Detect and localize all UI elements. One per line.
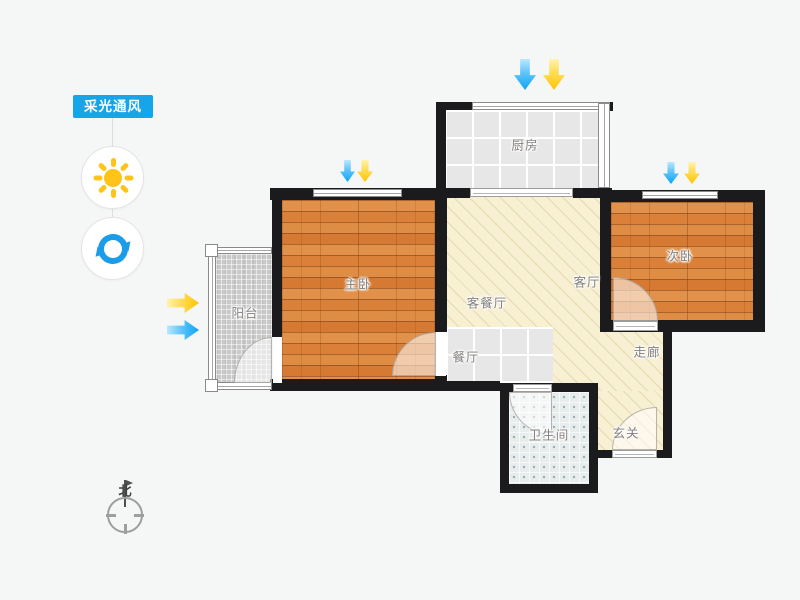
room-label-balcony: 阳台 <box>231 303 258 322</box>
room-label-kitchen: 厨房 <box>511 135 538 154</box>
wall <box>272 188 282 337</box>
panel-title: 采光通风 <box>73 95 153 118</box>
door-threshold <box>613 321 658 331</box>
floorplan-viewer: 采光通风 <box>0 0 800 600</box>
room-label-living: 客厅 <box>573 272 600 291</box>
window <box>208 247 216 390</box>
window-post <box>205 379 218 392</box>
sun-icon <box>93 158 133 198</box>
wall <box>270 379 447 391</box>
refresh-icon <box>93 229 133 269</box>
room-label-master-bedroom: 主卧 <box>344 274 371 293</box>
room-label-dining: 餐厅 <box>452 347 479 366</box>
wall <box>447 381 500 391</box>
ventilation-arrow-blue-down <box>663 162 679 184</box>
window <box>313 189 402 197</box>
window <box>472 102 610 110</box>
wall <box>500 484 598 493</box>
sliding-door <box>470 188 573 197</box>
wall <box>600 192 611 332</box>
wall <box>446 188 470 198</box>
door-opening <box>436 332 446 376</box>
room-label-second-bedroom: 次卧 <box>666 246 693 265</box>
ventilation-arrow-blue-down <box>514 59 536 90</box>
wall <box>435 375 447 391</box>
wall <box>436 102 446 198</box>
wall <box>753 190 765 332</box>
door-threshold <box>513 384 552 392</box>
compass-tick <box>106 514 116 517</box>
room-label-bathroom: 卫生间 <box>529 425 570 444</box>
wall <box>663 326 672 458</box>
room-label-entry: 玄关 <box>612 423 639 442</box>
ventilation-arrow-blue-down <box>340 160 355 182</box>
compass-tick <box>134 514 144 517</box>
wall <box>589 383 598 493</box>
entry-door-threshold <box>612 450 657 458</box>
ventilation-arrow-blue-right <box>167 320 199 340</box>
wall <box>435 188 447 332</box>
window <box>598 103 610 188</box>
light-arrow-yellow-down <box>357 160 373 182</box>
wall <box>500 383 509 493</box>
room-label-living-dining: 客餐厅 <box>467 293 508 312</box>
room-label-corridor: 走廊 <box>633 342 660 361</box>
compass-tick <box>124 524 127 534</box>
sunlight-button[interactable] <box>81 146 144 209</box>
door-opening <box>273 337 282 383</box>
light-arrow-yellow-down <box>543 59 565 90</box>
light-arrow-yellow-right <box>167 293 199 313</box>
ventilation-button[interactable] <box>81 217 144 280</box>
window <box>642 191 718 199</box>
window-post <box>205 244 218 257</box>
light-arrow-yellow-down <box>684 162 700 184</box>
wall <box>436 102 472 110</box>
